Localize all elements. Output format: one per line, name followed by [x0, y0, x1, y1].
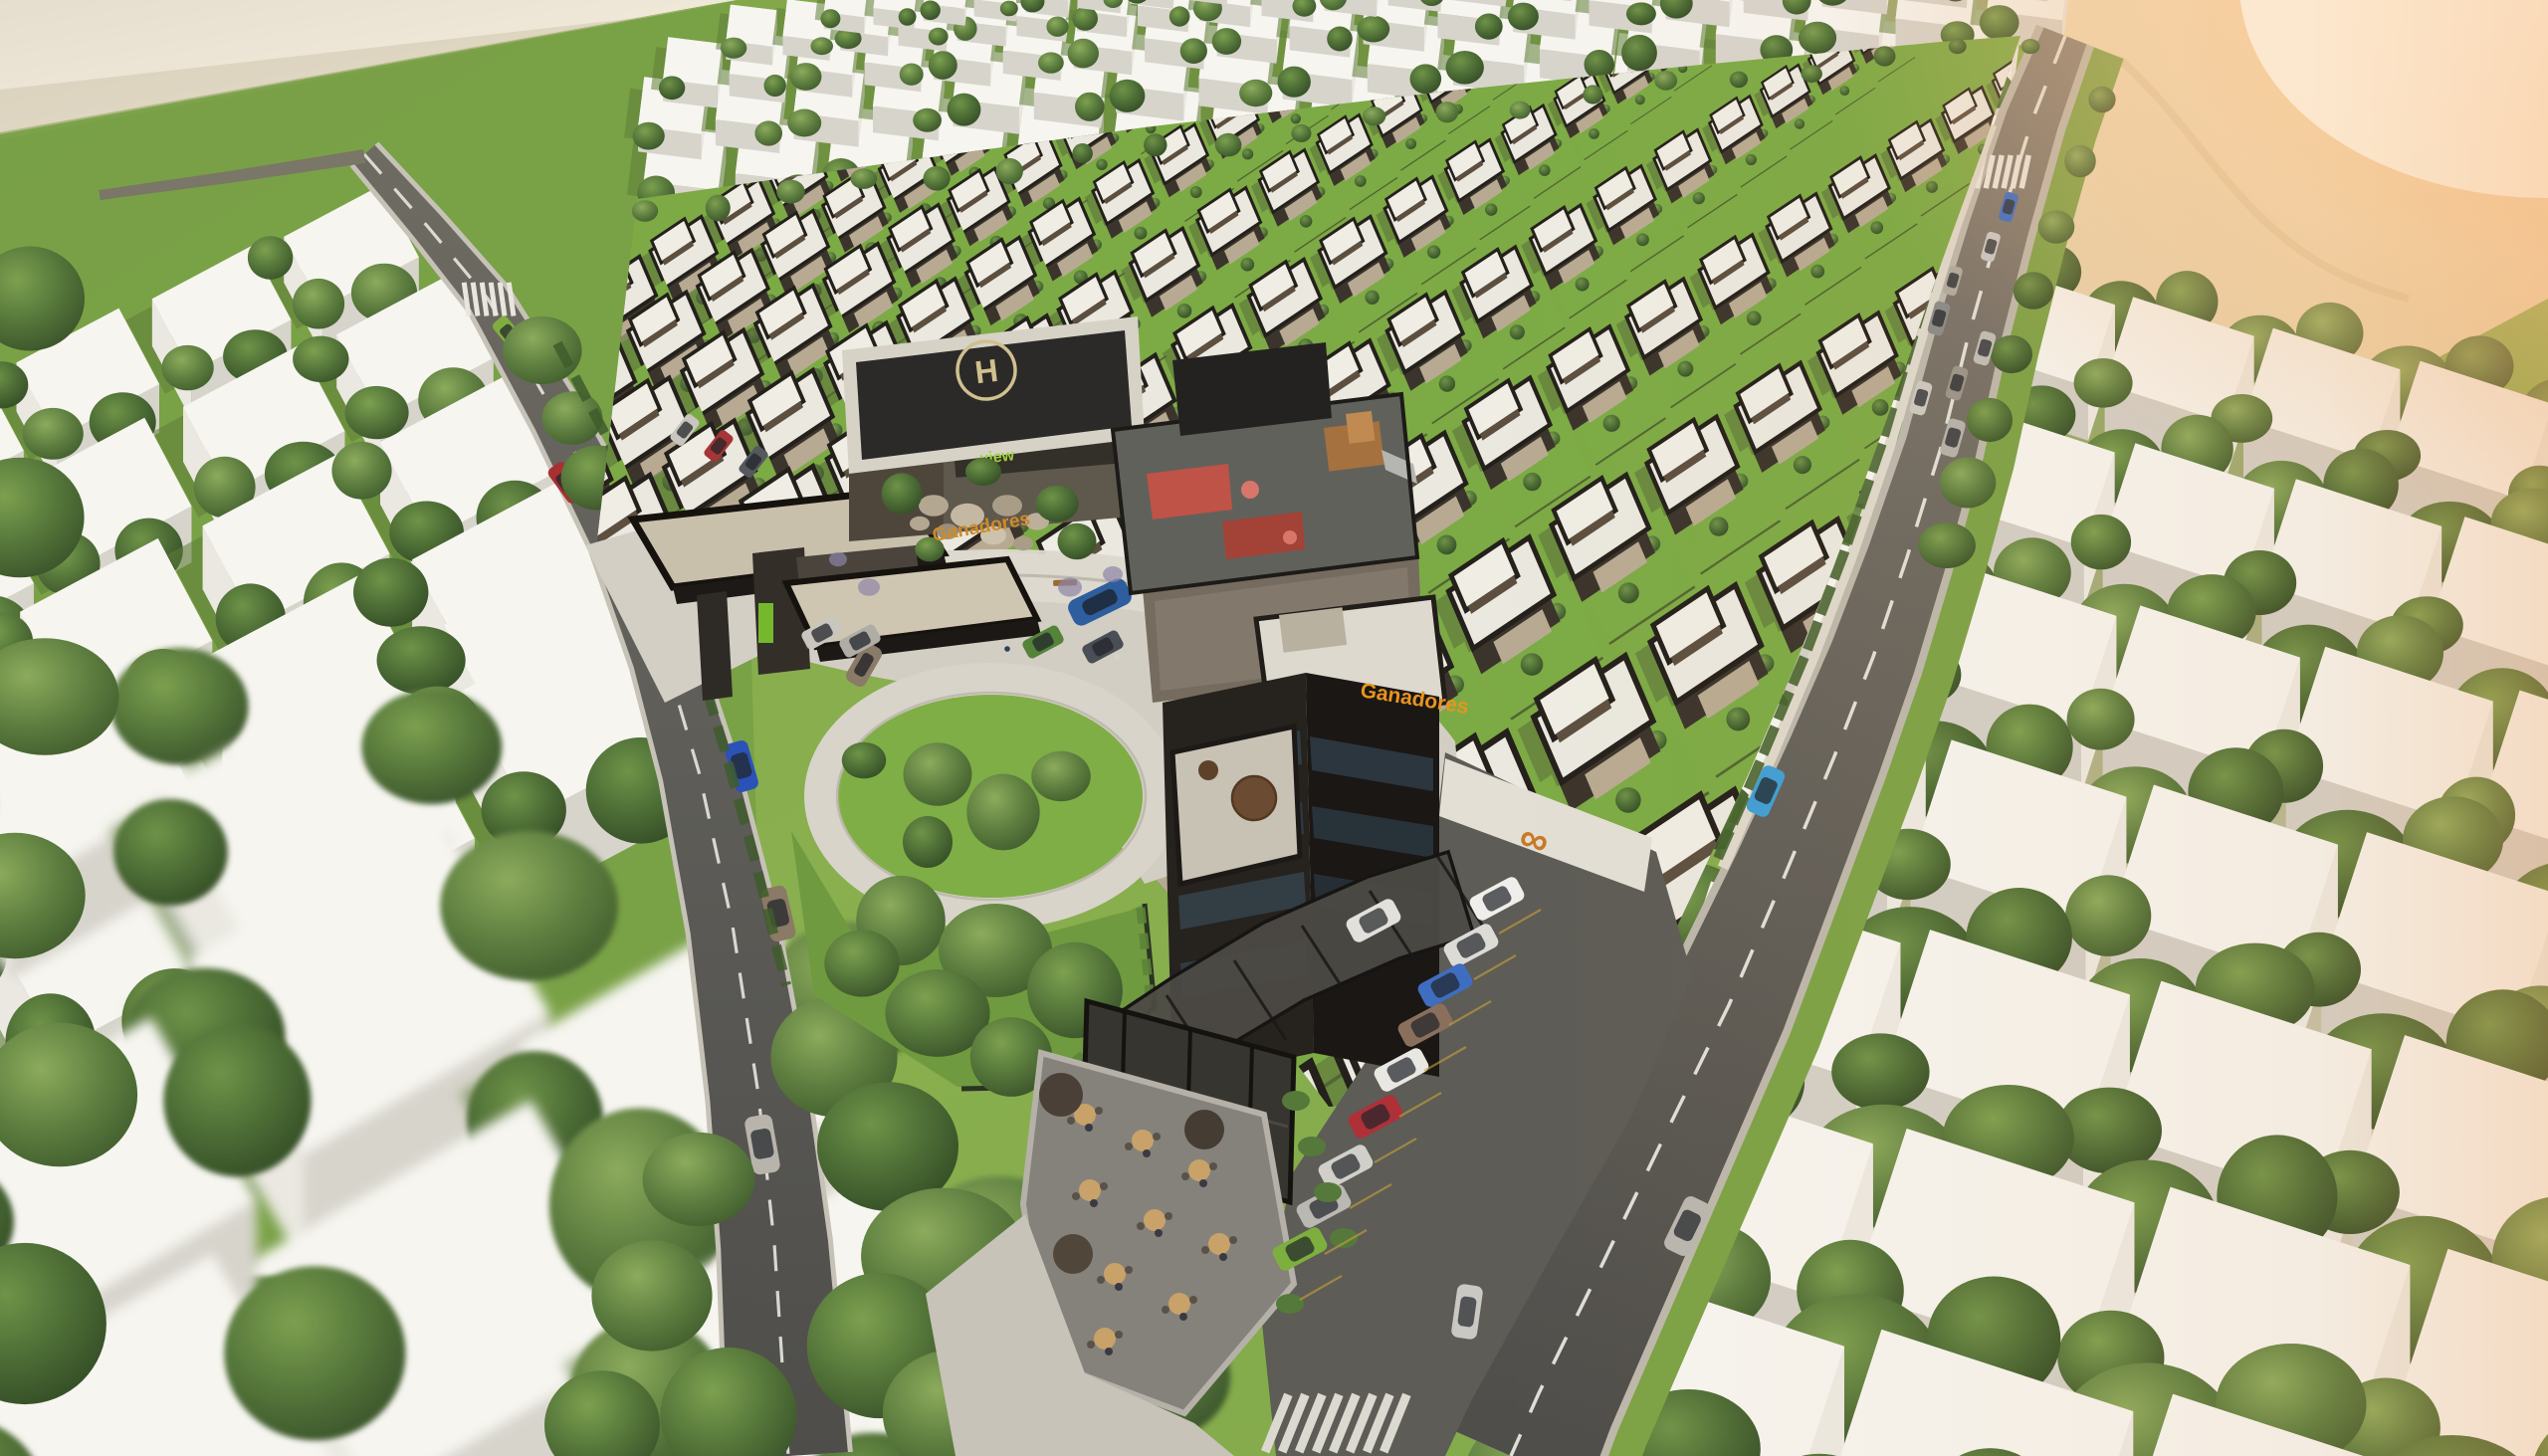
- svg-text:H: H: [972, 352, 999, 391]
